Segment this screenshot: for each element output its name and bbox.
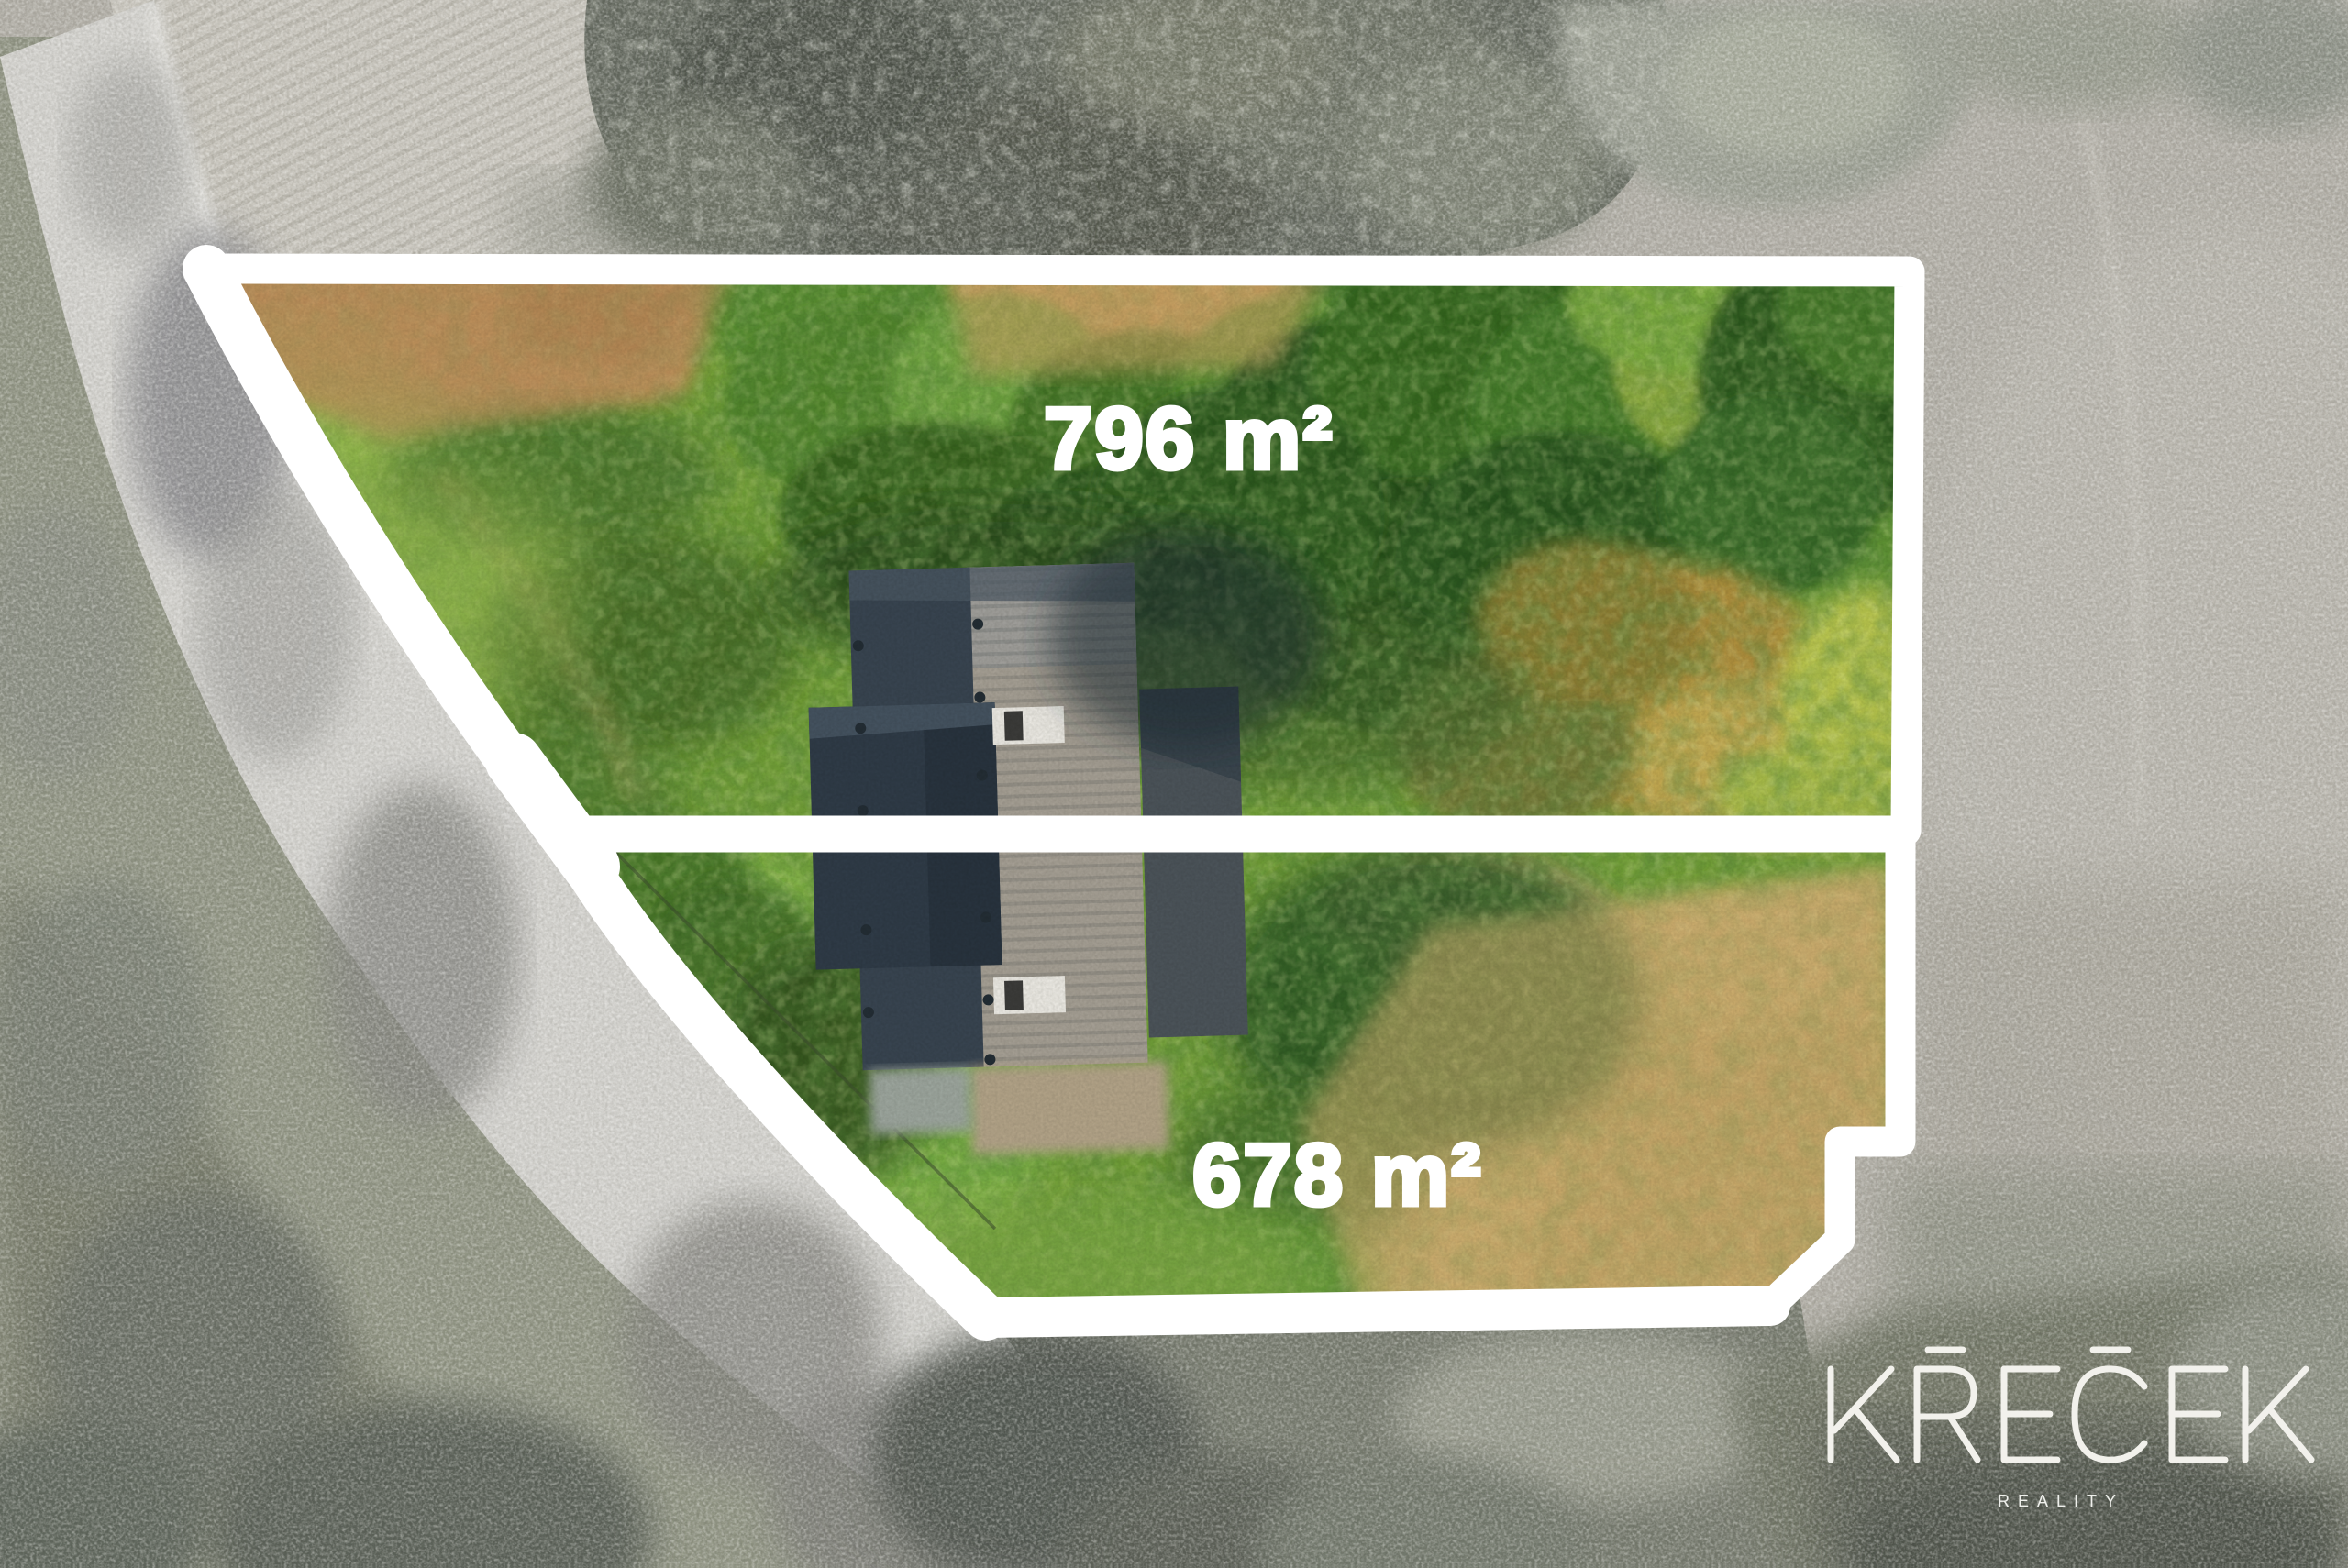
svg-text:REALITY: REALITY	[1998, 1492, 2124, 1510]
svg-text:678 m²: 678 m²	[1192, 1126, 1482, 1224]
svg-text:796 m²: 796 m²	[1044, 390, 1334, 488]
